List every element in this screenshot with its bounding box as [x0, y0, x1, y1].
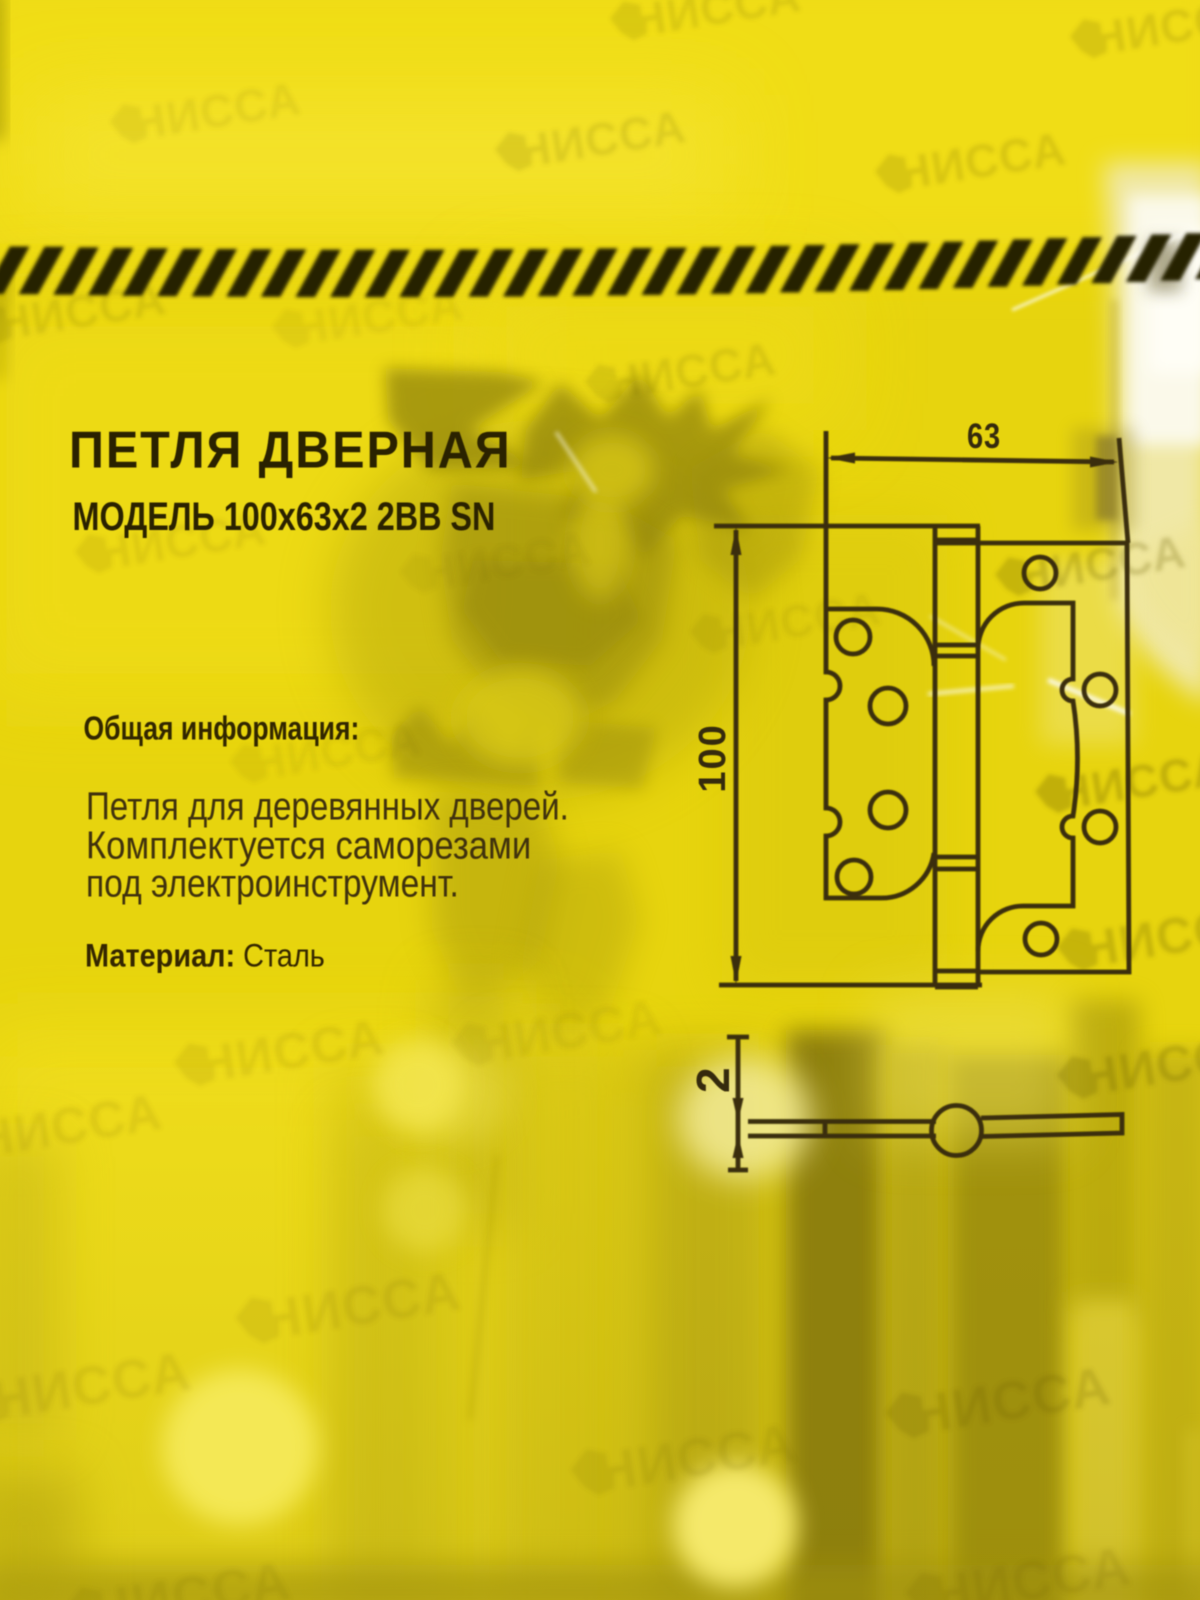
svg-text:под электроинструмент.: под электроинструмент.	[86, 862, 459, 906]
svg-text:ПЕТЛЯ ДВЕРНАЯ: ПЕТЛЯ ДВЕРНАЯ	[69, 421, 512, 479]
svg-text:63: 63	[967, 416, 1001, 455]
svg-text:Комплектуется саморезами: Комплектуется саморезами	[86, 824, 531, 867]
svg-text:Материал: Сталь: Материал: Сталь	[85, 937, 325, 974]
svg-text:2: 2	[687, 1067, 739, 1093]
svg-text:100: 100	[692, 723, 734, 792]
svg-text:Петля для деревянных дверей.: Петля для деревянных дверей.	[86, 785, 569, 828]
svg-text:Общая информация:: Общая информация:	[84, 711, 360, 748]
svg-text:МОДЕЛЬ 100х63х2 2ВВ SN: МОДЕЛЬ 100х63х2 2ВВ SN	[73, 494, 496, 539]
